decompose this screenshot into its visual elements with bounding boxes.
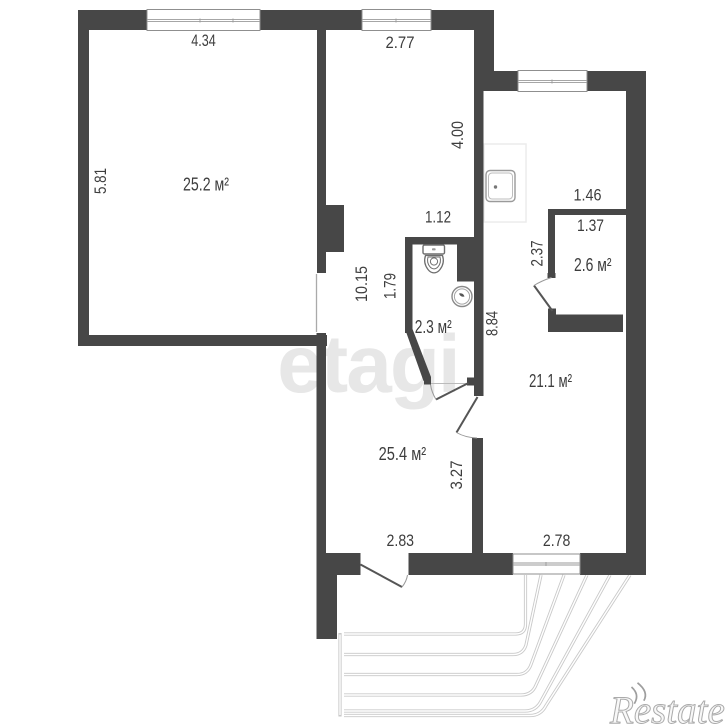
svg-text:25.2 м²: 25.2 м² [183, 174, 229, 195]
svg-text:1.79: 1.79 [382, 273, 400, 299]
svg-text:4.34: 4.34 [191, 32, 216, 50]
svg-text:10.15: 10.15 [353, 266, 371, 302]
svg-text:3.27: 3.27 [448, 461, 466, 490]
svg-text:25.4 м²: 25.4 м² [379, 443, 427, 464]
svg-text:2.77: 2.77 [386, 34, 415, 52]
svg-text:1.12: 1.12 [425, 209, 451, 227]
svg-text:2.78: 2.78 [543, 532, 571, 550]
svg-text:5.81: 5.81 [92, 168, 110, 194]
svg-text:2.3 м²: 2.3 м² [415, 316, 452, 337]
svg-text:2.6 м²: 2.6 м² [574, 254, 612, 275]
svg-text:4.00: 4.00 [449, 121, 467, 149]
svg-text:1.37: 1.37 [577, 217, 604, 235]
svg-text:1.46: 1.46 [574, 187, 602, 205]
svg-text:21.1 м²: 21.1 м² [529, 370, 572, 391]
svg-text:2.37: 2.37 [529, 241, 547, 267]
svg-text:Restate: Restate [609, 689, 725, 725]
svg-text:8.84: 8.84 [484, 311, 502, 336]
svg-text:2.83: 2.83 [387, 532, 415, 550]
